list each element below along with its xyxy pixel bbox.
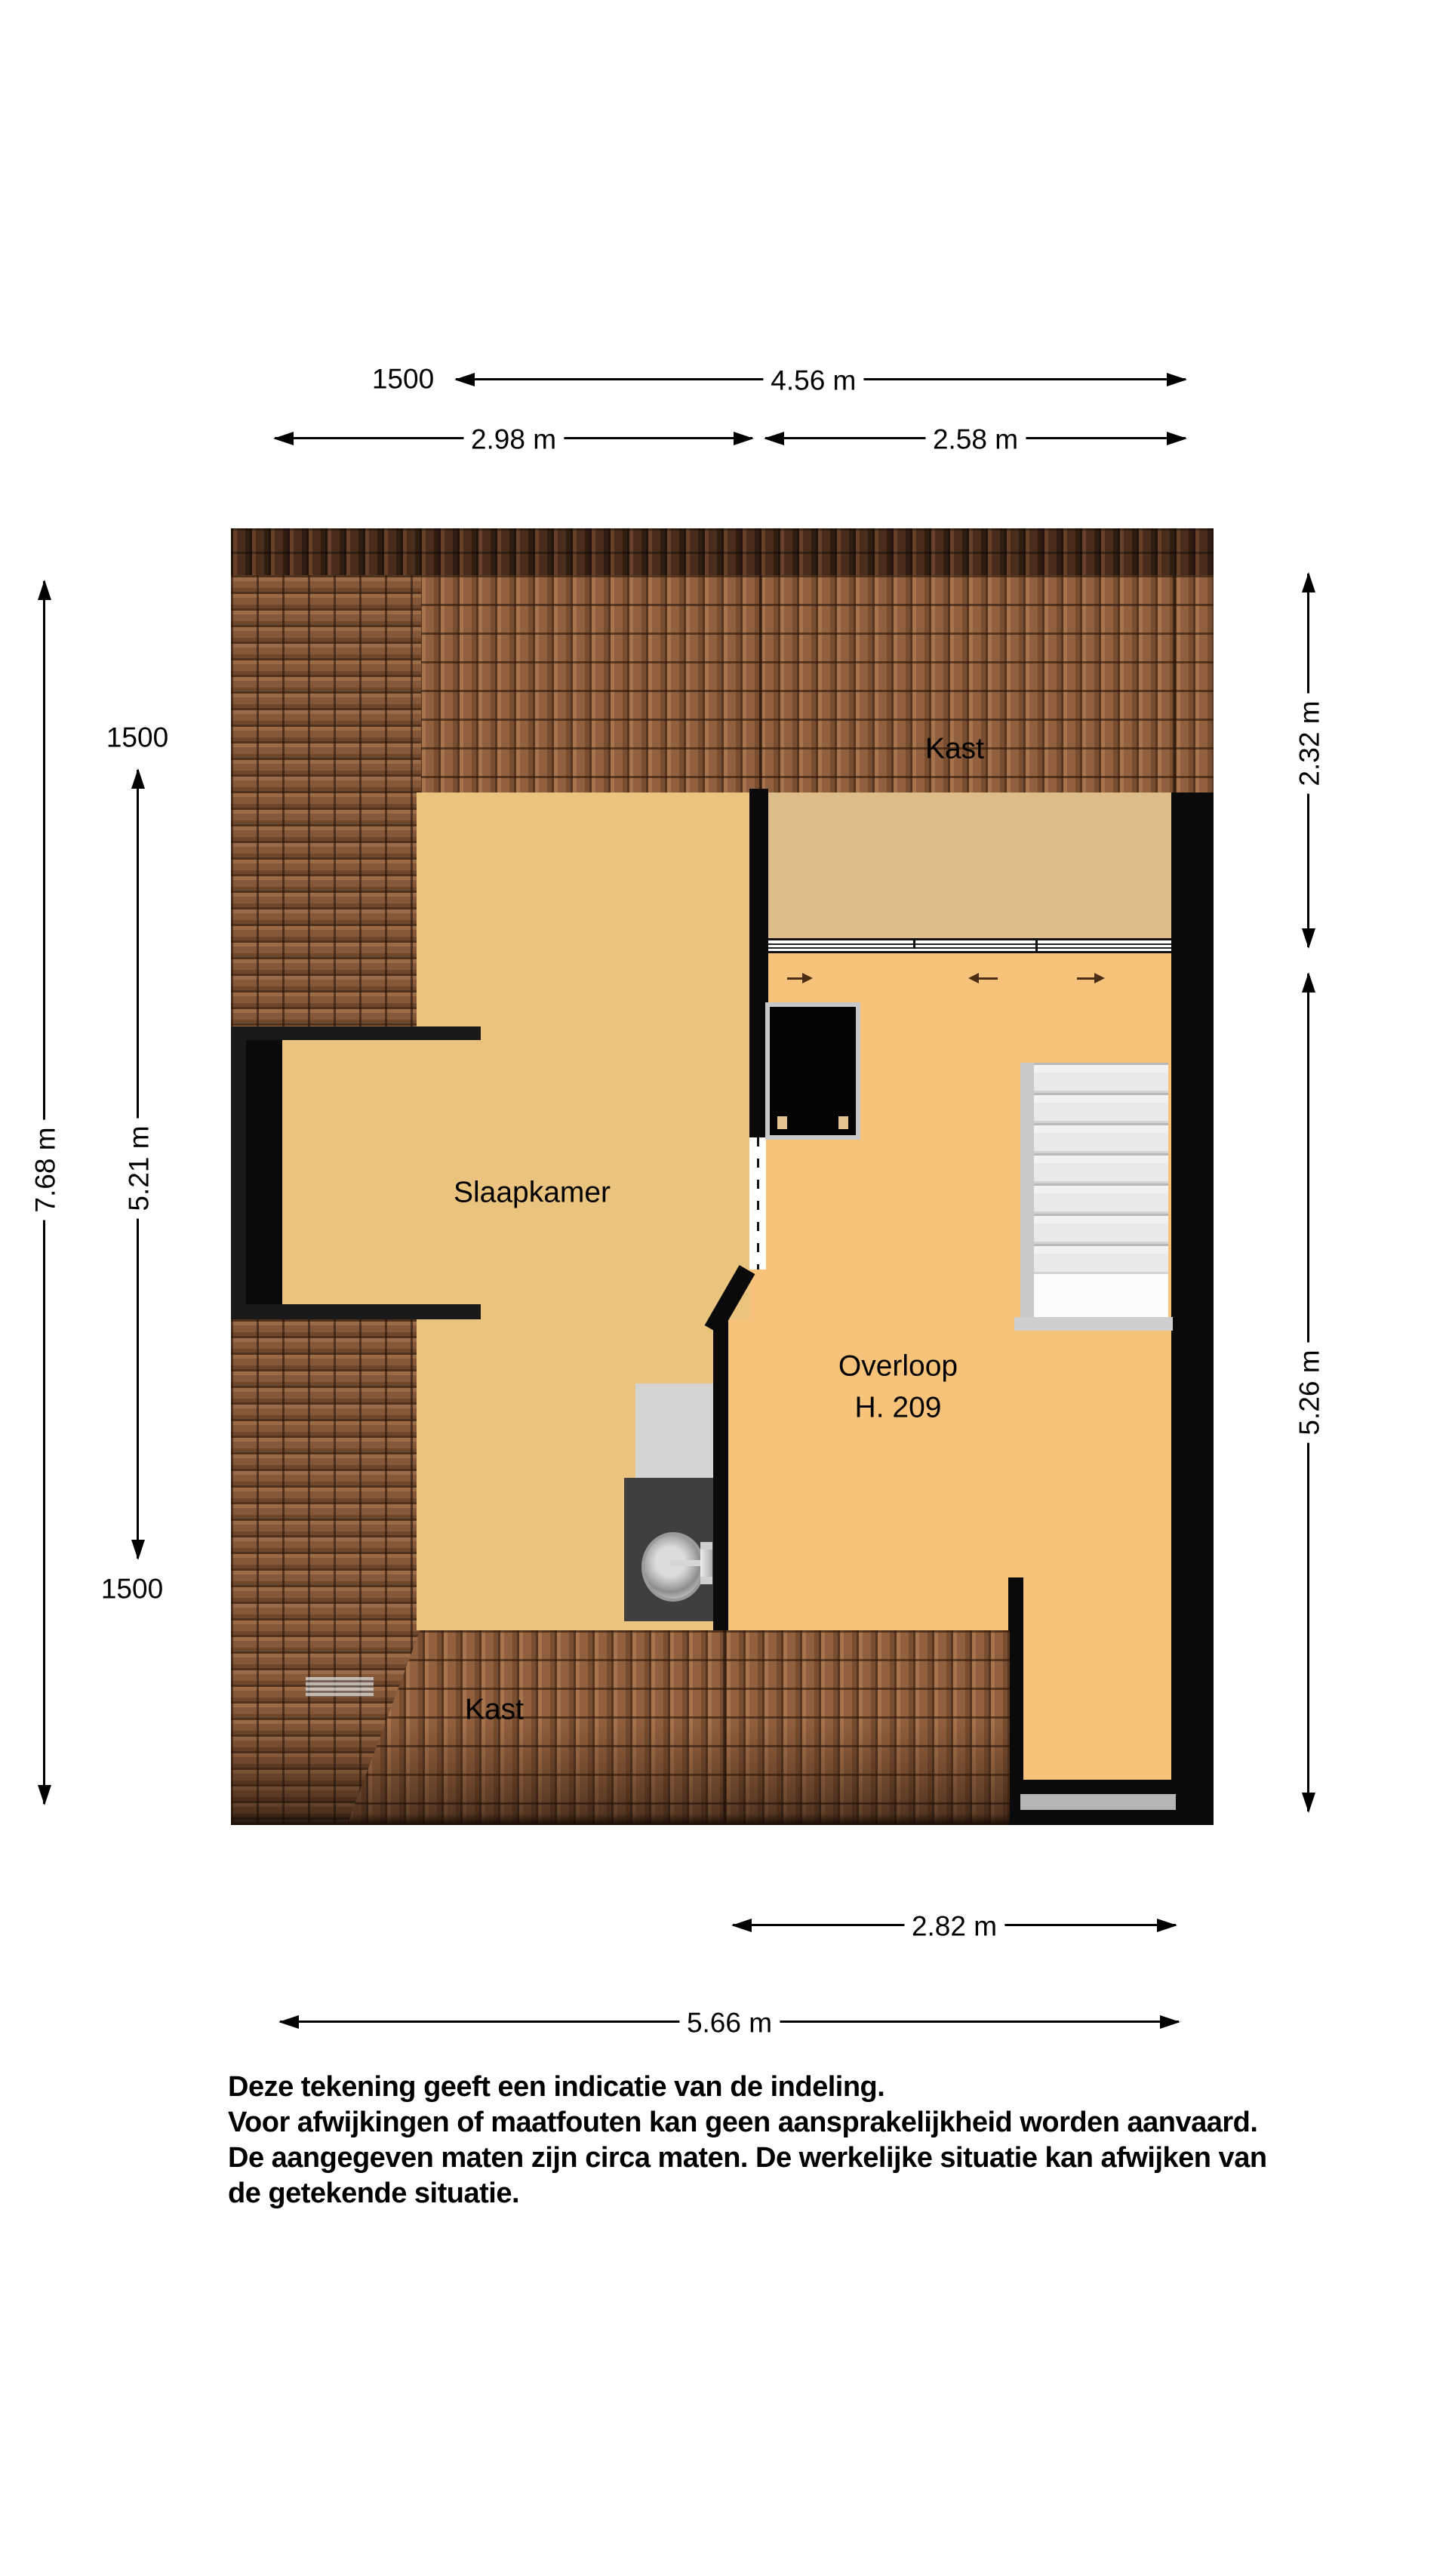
faucet-pipe <box>670 1560 703 1566</box>
roof-bottom <box>347 1630 1010 1825</box>
label-overloop-code: H. 209 <box>855 1393 942 1423</box>
stove-foot-right <box>838 1116 848 1129</box>
dormer-wall-left <box>231 1026 246 1319</box>
dim-top-left-arrow: 2.98 m <box>275 437 752 439</box>
roof-ridge <box>231 528 1214 579</box>
glass-partition <box>768 938 1171 953</box>
arrow-right-icon <box>1157 1919 1177 1932</box>
dormer-wall-top <box>231 1026 481 1040</box>
disclaimer-line-3: De aangegeven maten zijn circa maten. De… <box>228 2141 1449 2176</box>
dim-top-total-arrow: 4.56 m <box>456 378 1186 380</box>
arrow-left-icon <box>454 373 475 386</box>
sink-bowl <box>641 1532 705 1602</box>
dim-top-code: 1500 <box>368 364 438 395</box>
label-kast-bottom: Kast <box>465 1695 524 1725</box>
dim-top-total: 4.56 m <box>763 364 863 398</box>
roof-bottom-seam <box>723 1630 726 1825</box>
faucet-handle <box>700 1542 712 1584</box>
arrow-left-icon <box>731 1919 752 1932</box>
dim-bottom-total-arrow: 5.66 m <box>280 2020 1179 2023</box>
arrow-head-icon <box>968 973 979 983</box>
arrow-right-icon <box>1167 373 1187 386</box>
dormer-recess <box>246 1040 282 1304</box>
dim-bottom-inner-arrow: 2.82 m <box>733 1924 1176 1926</box>
dim-left-inner-arrow: 5.21 m <box>137 770 139 1559</box>
arrow-down-icon <box>1302 928 1315 949</box>
swing-arrow-2 <box>978 977 998 980</box>
arrow-down-icon <box>1302 1793 1315 1813</box>
wall-right <box>1171 792 1214 1825</box>
dim-right-upper: 2.32 m <box>1293 693 1327 793</box>
dim-left-code-top: 1500 <box>102 722 173 753</box>
dim-top-left: 2.98 m <box>463 423 564 457</box>
door-opening <box>749 1137 766 1270</box>
dim-right-upper-arrow: 2.32 m <box>1307 574 1309 947</box>
arrow-up-icon <box>1302 572 1315 592</box>
arrow-left-icon <box>764 432 784 445</box>
stove-block <box>765 1002 860 1140</box>
label-overloop: Overloop <box>838 1352 958 1381</box>
roof-seam-left <box>759 575 762 792</box>
dim-top-right: 2.58 m <box>925 423 1026 457</box>
disclaimer-text: Deze tekening geeft een indicatie van de… <box>228 2070 1449 2211</box>
dormer-wall-bottom <box>231 1304 481 1319</box>
floor-slaapkamer-upper <box>417 792 749 1319</box>
wall-bottom-right <box>1008 1577 1023 1825</box>
disclaimer-line-1: Deze tekening geeft een indicatie van de… <box>228 2070 1449 2105</box>
arrow-down-icon <box>38 1785 51 1805</box>
dim-top-right-arrow: 2.58 m <box>765 437 1186 439</box>
stairs-side-rail <box>1020 1063 1034 1317</box>
arrow-right-icon <box>1167 432 1187 445</box>
balcony-wall-top <box>1023 1780 1171 1794</box>
door-dashed-line <box>757 1137 759 1270</box>
dim-bottom-total: 5.66 m <box>679 2006 780 2040</box>
dim-right-lower: 5.26 m <box>1293 1342 1327 1442</box>
balcony-gray-strip <box>1020 1794 1176 1810</box>
stairs-landing <box>1034 1274 1168 1317</box>
arrow-up-icon <box>38 580 51 600</box>
glass-tick-1 <box>913 938 915 949</box>
balcony-wall-bottom <box>1023 1810 1171 1825</box>
floor-overloop-lower <box>1023 1630 1171 1780</box>
arrow-up-icon <box>1302 972 1315 993</box>
disclaimer-line-4: de getekende situatie. <box>228 2176 1449 2211</box>
roof-seam-right <box>1173 575 1176 792</box>
dim-left-code-bottom: 1500 <box>97 1574 168 1605</box>
arrow-right-icon <box>1160 2015 1180 2029</box>
roof-left-upper <box>231 575 421 1028</box>
stairs-treads <box>1034 1063 1168 1274</box>
floor-dormer <box>282 1040 417 1304</box>
dim-left-inner: 5.21 m <box>122 1118 156 1218</box>
arrow-left-icon <box>273 432 294 445</box>
dim-right-lower-arrow: 5.26 m <box>1307 974 1309 1811</box>
swing-arrow-3 <box>1077 977 1095 980</box>
glass-tick-2 <box>1035 940 1038 951</box>
arrow-up-icon <box>131 768 145 789</box>
arrow-right-icon <box>734 432 754 445</box>
stairs-bottom-step <box>1014 1317 1173 1331</box>
dim-left-total-arrow: 7.68 m <box>43 581 45 1804</box>
arrow-left-icon <box>278 2015 299 2029</box>
arrow-head-icon <box>1094 973 1105 983</box>
dim-left-total: 7.68 m <box>29 1119 63 1220</box>
arrow-head-icon <box>802 973 813 983</box>
roof-vent <box>306 1677 374 1697</box>
arrow-down-icon <box>131 1540 145 1560</box>
label-kast-top: Kast <box>925 734 984 764</box>
floorplan-page: { "rooms": { "kast_top": "Kast", "slaapk… <box>0 0 1449 2576</box>
floor-kast <box>768 792 1171 938</box>
sink-counter <box>635 1383 713 1478</box>
swing-arrow-1 <box>787 977 803 980</box>
wall-lower <box>713 1321 728 1632</box>
dim-bottom-inner: 2.82 m <box>904 1910 1004 1944</box>
label-slaapkamer: Slaapkamer <box>454 1178 611 1208</box>
disclaimer-line-2: Voor afwijkingen of maatfouten kan geen … <box>228 2105 1449 2141</box>
stove-foot-left <box>777 1116 787 1129</box>
